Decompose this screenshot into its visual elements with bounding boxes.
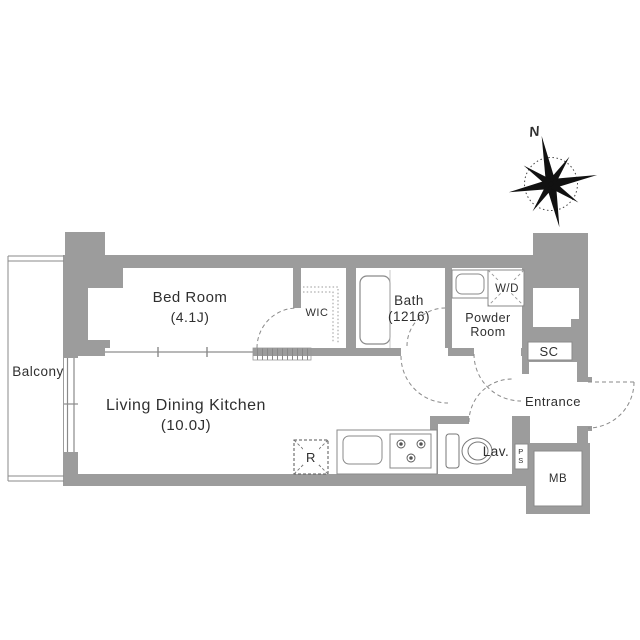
entrance-door-swing — [588, 382, 634, 428]
bedroom-label: Bed Room — [153, 289, 228, 306]
entrance-door-jamb-top — [577, 377, 592, 382]
wash-basin — [452, 270, 488, 298]
wic-label: WIC — [306, 307, 329, 319]
ldk-size-label: (10.0J) — [161, 417, 211, 434]
kitchen-counter — [337, 430, 437, 474]
powder-room-label-2: Room — [470, 325, 505, 339]
compass-north-label: N — [528, 123, 541, 140]
entrance-door-jamb-bottom — [577, 426, 592, 431]
bedroom-size-label: (4.1J) — [171, 309, 210, 325]
entrance-label: Entrance — [525, 394, 581, 409]
pipe-space-label-p: P — [518, 447, 524, 456]
powder-room-label-1: Powder — [465, 311, 510, 325]
wic-door-gap — [293, 308, 301, 348]
hatched-threshold — [253, 348, 311, 360]
lavatory-door-gap — [469, 416, 512, 424]
meter-box-label: MB — [549, 473, 567, 485]
bath-label: Bath — [394, 293, 424, 308]
washer-dryer-label: W/D — [495, 283, 519, 295]
stove — [390, 434, 431, 468]
pipe-space-label-s: S — [518, 456, 524, 465]
refrigerator-label: R — [306, 450, 316, 465]
alcove-step — [571, 319, 579, 327]
kitchen-sink — [343, 436, 382, 464]
bath-door-gap — [401, 348, 448, 356]
compass-rose: N — [496, 123, 606, 239]
bath-size-label: (1216) — [388, 309, 430, 324]
balcony-window-gap — [64, 358, 78, 452]
toilet-tank — [446, 434, 459, 468]
floor-plan-drawing: N Bed Room (4.1J) Living Dining Kitchen … — [0, 0, 640, 640]
bathtub — [360, 276, 390, 344]
lavatory-label: Lav. — [483, 444, 510, 459]
balcony-label: Balcony — [12, 364, 64, 379]
bottom-wall — [63, 474, 530, 486]
shoe-closet-label: SC — [539, 344, 558, 359]
floor-plan-page: N Bed Room (4.1J) Living Dining Kitchen … — [0, 0, 640, 640]
ldk-label: Living Dining Kitchen — [106, 397, 266, 414]
powder-door-gap — [474, 348, 521, 356]
